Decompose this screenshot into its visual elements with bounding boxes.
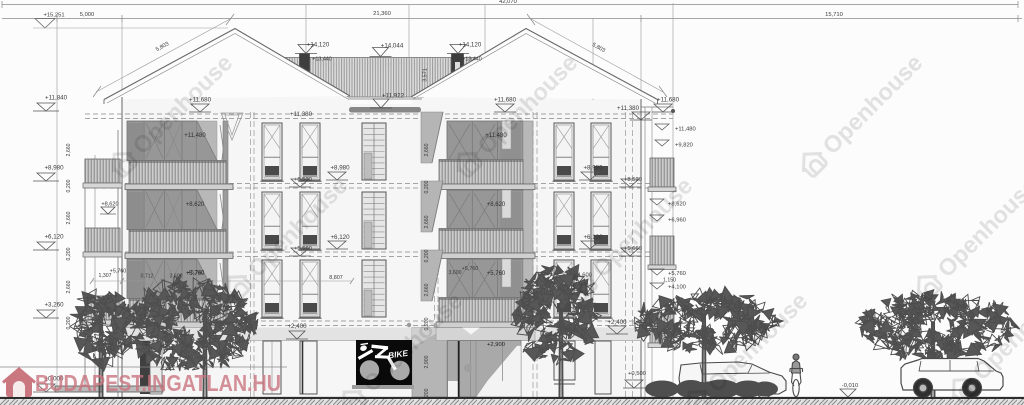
svg-text:+11,680: +11,680 (657, 97, 680, 104)
svg-text:+14,120: +14,120 (459, 42, 482, 49)
svg-text:0,200: 0,200 (66, 247, 72, 260)
svg-text:+8,980: +8,980 (330, 165, 350, 172)
svg-text:-0,010: -0,010 (842, 383, 858, 389)
svg-text:0,200: 0,200 (424, 180, 430, 193)
svg-text:+5,760: +5,760 (487, 271, 506, 277)
svg-text:+6,120: +6,120 (583, 234, 603, 241)
svg-text:+11,380: +11,380 (290, 111, 313, 118)
svg-text:42,070: 42,070 (499, 0, 517, 5)
svg-text:+0,500: +0,500 (628, 371, 646, 377)
svg-text:+6,960: +6,960 (668, 218, 686, 224)
svg-text:+8,980: +8,980 (44, 165, 64, 172)
svg-text:+8,620: +8,620 (101, 202, 118, 208)
svg-text:2,660: 2,660 (424, 143, 430, 156)
svg-text:2,660: 2,660 (66, 211, 72, 224)
svg-text:+9,820: +9,820 (675, 143, 693, 149)
svg-text:+11,380: +11,380 (617, 105, 640, 112)
svg-text:+8,620: +8,620 (186, 202, 205, 208)
svg-text:+2,400: +2,400 (607, 319, 627, 326)
svg-text:+5,760: +5,760 (188, 270, 205, 276)
svg-text:0,200: 0,200 (66, 179, 72, 192)
svg-text:2,900: 2,900 (424, 355, 430, 368)
svg-text:0,712: 0,712 (141, 274, 154, 280)
svg-text:+8,980: +8,980 (583, 165, 603, 172)
svg-text:+2,400: +2,400 (287, 323, 307, 330)
svg-text:+8,520: +8,520 (624, 177, 642, 183)
svg-text:3,571: 3,571 (423, 68, 429, 82)
svg-text:+14,044: +14,044 (381, 43, 404, 50)
svg-text:+6,120: +6,120 (44, 234, 64, 241)
svg-text:+3,260: +3,260 (44, 302, 64, 309)
svg-text:21,360: 21,360 (373, 11, 391, 17)
svg-text:2,660: 2,660 (66, 143, 72, 156)
svg-text:8,807: 8,807 (329, 275, 343, 281)
svg-text:+5,760: +5,760 (110, 269, 127, 275)
svg-text:+14,120: +14,120 (307, 42, 330, 49)
svg-text:+11,480: +11,480 (675, 127, 696, 133)
svg-text:+8,520: +8,520 (294, 177, 312, 183)
svg-text:+5,760: +5,760 (462, 266, 479, 272)
svg-text:5,000: 5,000 (80, 12, 95, 18)
svg-text:0,200: 0,200 (424, 249, 430, 262)
svg-text:+11,922: +11,922 (382, 93, 405, 100)
svg-text:+11,480: +11,480 (184, 133, 206, 139)
svg-text:+11,840: +11,840 (45, 95, 68, 102)
svg-text:+6,120: +6,120 (330, 234, 350, 241)
svg-text:+8,620: +8,620 (487, 202, 506, 208)
svg-text:2,660: 2,660 (66, 280, 72, 293)
svg-text:+13,440: +13,440 (312, 57, 332, 63)
svg-text:15,710: 15,710 (825, 12, 843, 18)
svg-text:+5,660: +5,660 (294, 246, 312, 252)
svg-text:1,150: 1,150 (663, 278, 676, 284)
svg-text:2,660: 2,660 (424, 283, 430, 296)
svg-text:+2,900: +2,900 (487, 342, 505, 348)
svg-text:BUDAPEST.INGATLAN.HU: BUDAPEST.INGATLAN.HU (35, 370, 281, 396)
svg-text:+15,251: +15,251 (43, 13, 64, 19)
svg-text:+5,760: +5,760 (668, 271, 686, 277)
svg-text:+13,440: +13,440 (462, 57, 482, 63)
svg-text:3,600: 3,600 (449, 270, 462, 276)
svg-text:2,660: 2,660 (424, 215, 430, 228)
svg-text:+4,100: +4,100 (668, 285, 686, 291)
